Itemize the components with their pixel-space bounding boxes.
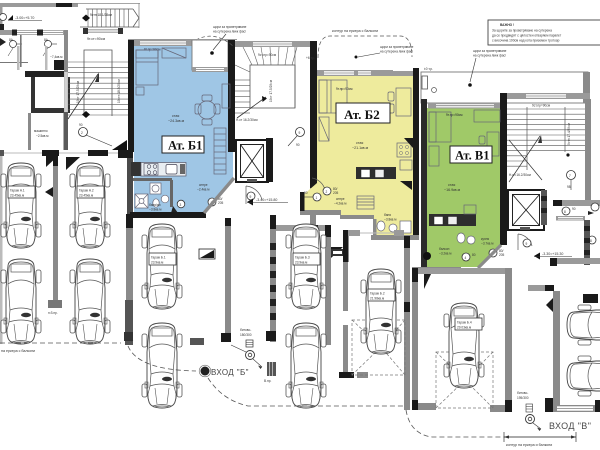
svg-text:ВХОД "Б": ВХОД "Б" xyxy=(211,368,249,377)
svg-text:4: 4 xyxy=(465,256,467,260)
svg-text:205: 205 xyxy=(499,253,505,257)
svg-text:90: 90 xyxy=(572,207,576,211)
svg-text:ВАЖНО !: ВАЖНО ! xyxy=(500,23,514,27)
svg-text:9: 9 xyxy=(526,242,528,246)
svg-text:195/300: 195/300 xyxy=(517,396,529,400)
svg-text:-3.30=+15.30: -3.30=+15.30 xyxy=(542,252,563,256)
svg-text:машинно: машинно xyxy=(34,129,48,133)
svg-text:21.98кв.м: 21.98кв.м xyxy=(370,297,384,301)
svg-text:балкон: балкон xyxy=(439,247,450,251)
svg-text:98: 98 xyxy=(567,185,571,189)
svg-text:Ат. В1: Ат. В1 xyxy=(455,149,489,163)
svg-text:9стп 17.4/29см: 9стп 17.4/29см xyxy=(567,123,571,145)
svg-text:9: 9 xyxy=(299,131,301,135)
svg-text:щори за проветряване: щори за проветряване xyxy=(380,45,414,49)
svg-text:90: 90 xyxy=(79,123,83,127)
svg-text:180/300: 180/300 xyxy=(240,333,252,337)
svg-text:23.9кв.м: 23.9кв.м xyxy=(295,261,307,265)
svg-text:+6 т.р.: +6 т.р. xyxy=(306,56,315,60)
svg-text:8: 8 xyxy=(590,239,592,243)
svg-text:9стп 18.1/28см: 9стп 18.1/28см xyxy=(90,13,112,17)
svg-text:антре: антре xyxy=(336,197,345,201)
svg-text:±0 т.р.: ±0 т.р. xyxy=(424,67,433,71)
svg-text:9ст.пр=90см: 9ст.пр=90см xyxy=(532,104,550,108)
svg-text:9: 9 xyxy=(250,195,252,199)
svg-text:7: 7 xyxy=(569,174,571,178)
svg-text:~3.8кв.м: ~3.8кв.м xyxy=(149,208,161,212)
svg-text:~24.3кв.м: ~24.3кв.м xyxy=(168,119,185,123)
svg-text:п.б.пр.: п.б.пр. xyxy=(48,311,58,315)
svg-text:205: 205 xyxy=(333,191,339,195)
svg-text:щори за проветряване: щори за проветряване xyxy=(473,49,507,53)
svg-text:~16.9кв.м: ~16.9кв.м xyxy=(444,188,461,192)
svg-text:на сутерена /виж фас/: на сутерена /виж фас/ xyxy=(213,30,246,34)
svg-text:Ат. Б2: Ат. Б2 xyxy=(344,107,380,122)
svg-text:Гараж А.2: Гараж А.2 xyxy=(79,189,94,193)
svg-text:19ст 17.5/29см: 19ст 17.5/29см xyxy=(269,80,273,102)
svg-text:29.03кв.м: 29.03кв.м xyxy=(457,326,471,330)
svg-text:Гараж Б.1: Гараж Б.1 xyxy=(151,256,166,260)
svg-text:9т.пр=90см: 9т.пр=90см xyxy=(446,113,462,117)
svg-text:да се предвидят с цялостен отв: да се предвидят с цялостен отваряем пара… xyxy=(492,34,562,38)
svg-text:на сутерена /виж фас/: на сутерена /виж фас/ xyxy=(380,50,413,54)
svg-text:контур на еркера с балкони: контур на еркера с балкони xyxy=(332,29,378,33)
svg-text:90: 90 xyxy=(296,143,300,147)
svg-text:205: 205 xyxy=(218,201,224,205)
svg-text:23.45кв.м: 23.45кв.м xyxy=(79,194,93,198)
svg-text:3: 3 xyxy=(180,203,182,207)
svg-text:Гараж Б.2: Гараж Б.2 xyxy=(370,292,385,296)
svg-text:битово-: битово- xyxy=(517,391,528,395)
svg-text:~3.8кв.м: ~3.8кв.м xyxy=(384,218,396,222)
svg-text:~4.2кв.м: ~4.2кв.м xyxy=(334,202,346,206)
svg-text:8: 8 xyxy=(564,210,566,214)
svg-text:19стп 18.5/29см: 19стп 18.5/29см xyxy=(117,79,121,103)
svg-text:стая: стая xyxy=(448,183,455,187)
svg-text:контур на еркера и балкони: контур на еркера и балкони xyxy=(506,443,552,447)
svg-text:стая: стая xyxy=(356,141,363,145)
svg-text:баня/wc: баня/wc xyxy=(149,203,161,207)
svg-text:на еркера с балкони: на еркера с балкони xyxy=(1,349,35,353)
svg-text:~2.4кв.м: ~2.4кв.м xyxy=(197,188,209,192)
svg-text:За щорите за проветряване на с: За щорите за проветряване на сутерена xyxy=(492,29,552,33)
svg-text:с височина 100см над кота приз: с височина 100см над кота приземен трото… xyxy=(492,39,560,43)
svg-text:на сутерена /виж фас/: на сутерена /виж фас/ xyxy=(473,54,506,58)
svg-text:9т.пр=90см: 9т.пр=90см xyxy=(336,87,352,91)
svg-text:щори за проветряване: щори за проветряване xyxy=(213,25,247,29)
svg-text:9ст.пр=90см: 9ст.пр=90см xyxy=(258,53,276,57)
svg-text:~3.7кв.м: ~3.7кв.м xyxy=(481,242,493,246)
svg-text:~21.1кв.м: ~21.1кв.м xyxy=(352,146,369,150)
svg-text:1: 1 xyxy=(316,196,318,200)
svg-text:В.пр.: В.пр. xyxy=(264,379,272,383)
svg-text:Гараж Б.3: Гараж Б.3 xyxy=(295,256,310,260)
svg-text:23.9кв.м: 23.9кв.м xyxy=(151,261,163,265)
svg-text:2: 2 xyxy=(81,131,83,135)
svg-text:Н.ст 16.2/30см: Н.ст 16.2/30см xyxy=(236,118,258,122)
svg-text:2: 2 xyxy=(326,190,328,194)
svg-text:80: 80 xyxy=(472,253,476,257)
svg-text:Н.кл 16.2/30см: Н.кл 16.2/30см xyxy=(509,173,531,177)
svg-text:стая: стая xyxy=(172,114,179,118)
svg-text:-3.40=+15.80: -3.40=+15.80 xyxy=(256,198,277,202)
svg-text:баня: баня xyxy=(384,213,391,217)
svg-text:В.пр.: В.пр. xyxy=(126,338,134,342)
svg-text:90: 90 xyxy=(304,191,308,195)
svg-text:ВХОД "В": ВХОД "В" xyxy=(549,421,591,431)
svg-text:9т.ст=90см: 9т.ст=90см xyxy=(87,37,106,41)
svg-text:~7,4кв.м: ~7,4кв.м xyxy=(50,55,62,59)
svg-text:кухня: кухня xyxy=(481,237,489,241)
svg-text:~2.5кв.м: ~2.5кв.м xyxy=(36,134,48,138)
svg-text:~3.2кв.м: ~3.2кв.м xyxy=(439,252,451,256)
svg-text:Гараж Б.4: Гараж Б.4 xyxy=(457,321,472,325)
svg-text:Гараж А.1: Гараж А.1 xyxy=(10,189,25,193)
svg-text:23.45кв.м: 23.45кв.м xyxy=(10,194,24,198)
svg-text:19ст 17.5/29см: 19ст 17.5/29см xyxy=(76,81,80,103)
svg-text:-3.00=+5.70: -3.00=+5.70 xyxy=(15,16,34,20)
svg-text:битово-: битово- xyxy=(240,328,251,332)
svg-text:антре: антре xyxy=(199,183,208,187)
svg-text:Ат. Б1: Ат. Б1 xyxy=(168,139,202,153)
